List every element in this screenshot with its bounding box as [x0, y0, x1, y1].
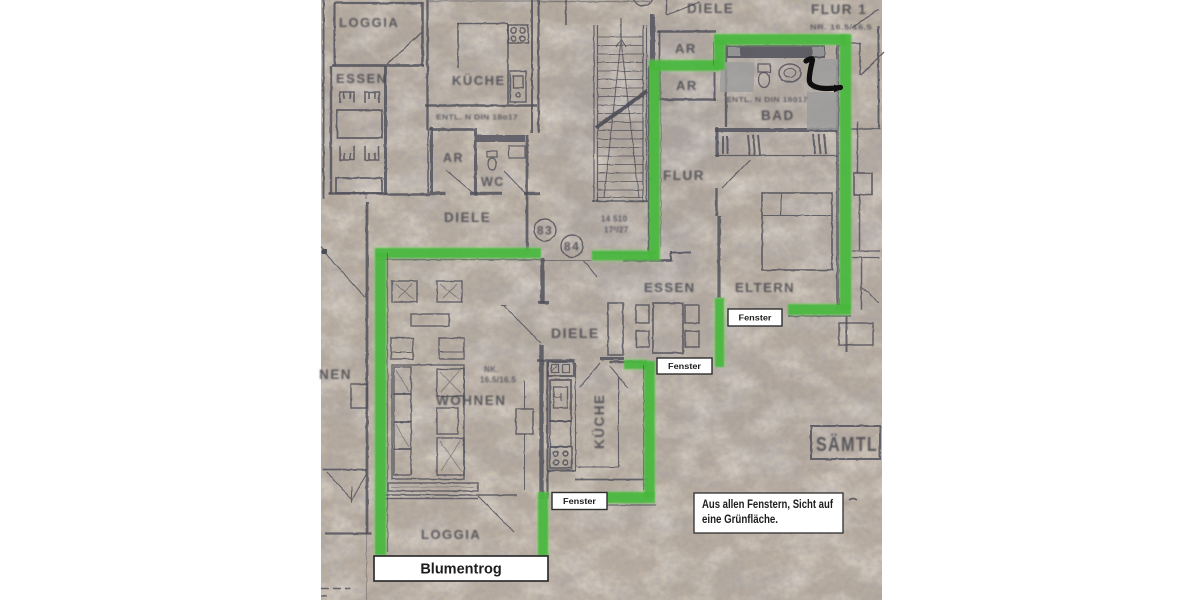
svg-text:84: 84	[564, 240, 580, 254]
svg-text:KÜCHE: KÜCHE	[452, 73, 506, 88]
svg-text:NR. 16.5/16.5: NR. 16.5/16.5	[810, 23, 873, 32]
svg-text:eine Grünfläche.: eine Grünfläche.	[702, 512, 778, 526]
svg-text:Fenster: Fenster	[739, 314, 772, 323]
svg-text:AR: AR	[443, 151, 464, 165]
svg-text:ENTL. N DIN 18017: ENTL. N DIN 18017	[726, 95, 808, 104]
svg-text:BAD: BAD	[761, 108, 795, 123]
svg-text:LOGGIA: LOGGIA	[421, 527, 481, 542]
svg-text:AR: AR	[676, 78, 698, 93]
svg-text:14 510: 14 510	[601, 215, 628, 224]
svg-text:ESSEN: ESSEN	[336, 71, 388, 86]
svg-text:NEN: NEN	[319, 367, 352, 382]
svg-text:SÄMTL: SÄMTL	[816, 433, 878, 456]
svg-text:Aus allen Fenstern, Sicht auf: Aus allen Fenstern, Sicht auf	[702, 497, 834, 511]
svg-text:83: 83	[537, 224, 553, 238]
svg-text:DIELE: DIELE	[551, 325, 600, 341]
svg-text:ENTL. N DIN 18o17: ENTL. N DIN 18o17	[436, 113, 518, 122]
svg-text:FLUR 1: FLUR 1	[811, 2, 867, 17]
svg-text:Fenster: Fenster	[668, 362, 701, 371]
svg-text:Fenster: Fenster	[563, 497, 596, 506]
svg-text:WOHNEN: WOHNEN	[436, 393, 507, 408]
svg-text:WC: WC	[481, 175, 505, 189]
svg-text:LOGGIA: LOGGIA	[339, 15, 399, 30]
svg-text:17²/27: 17²/27	[604, 226, 629, 235]
svg-text:Blumentrog: Blumentrog	[420, 562, 501, 578]
svg-text:DIELE: DIELE	[444, 210, 491, 225]
svg-text:FLUR: FLUR	[663, 168, 705, 183]
svg-text:16.5/16.5: 16.5/16.5	[480, 376, 516, 385]
svg-text:KÜCHE: KÜCHE	[592, 393, 607, 449]
svg-text:AR: AR	[675, 41, 697, 56]
svg-text:NK.: NK.	[484, 365, 499, 374]
svg-text:ESSEN: ESSEN	[644, 280, 696, 295]
svg-text:ELTERN: ELTERN	[735, 280, 795, 295]
svg-text:DIELE: DIELE	[687, 1, 734, 16]
